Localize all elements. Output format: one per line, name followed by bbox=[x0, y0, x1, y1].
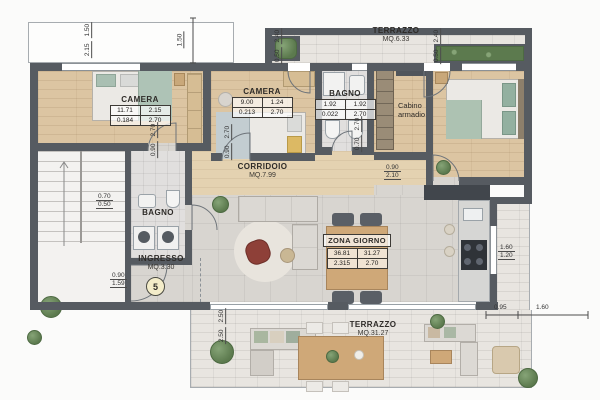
cell: 11.71 bbox=[110, 106, 140, 116]
dim-value: 2.70 bbox=[354, 116, 362, 133]
cell: 0.184 bbox=[110, 116, 140, 126]
room-name: CAMERA bbox=[243, 87, 281, 96]
outdoor-armchair bbox=[492, 346, 520, 374]
hedge bbox=[436, 46, 524, 61]
dimension-label: 0.901.59 bbox=[110, 272, 127, 288]
room-tag-terrazzo-top: TERRAZZO MQ.6.33 bbox=[357, 26, 435, 43]
wall bbox=[490, 204, 497, 226]
wall bbox=[328, 302, 348, 310]
plant bbox=[436, 160, 451, 175]
cell: 2.70 bbox=[357, 259, 387, 269]
room-name: CAMERA bbox=[121, 95, 159, 104]
plant bbox=[27, 330, 42, 345]
cell: 2.70 bbox=[262, 108, 292, 118]
cell: 9.00 bbox=[232, 98, 262, 108]
room-name-line: Cabino bbox=[398, 101, 440, 110]
window bbox=[352, 63, 368, 71]
outdoor-sofa bbox=[250, 350, 274, 376]
window bbox=[490, 226, 497, 274]
wall bbox=[315, 147, 332, 155]
toilet bbox=[166, 190, 180, 208]
wall bbox=[38, 63, 62, 71]
room-tag-corridoio: CORRIDOIO MQ.7.99 bbox=[225, 162, 300, 179]
wall bbox=[490, 197, 532, 204]
cell: 36.81 bbox=[327, 249, 357, 259]
pillow bbox=[502, 111, 516, 135]
washer-drum bbox=[138, 231, 150, 243]
cell: 2.15 bbox=[140, 106, 170, 116]
cell: 0.213 bbox=[232, 108, 262, 118]
wall bbox=[450, 63, 462, 71]
wall bbox=[211, 153, 222, 161]
dim-value: 1.60 bbox=[498, 244, 515, 252]
room-area: MQ.7.99 bbox=[249, 172, 276, 179]
dimension-label: 0.502.40 bbox=[433, 28, 441, 64]
room-data-table: 9.001.24 0.2132.70 bbox=[232, 97, 293, 118]
dim-value: 1.60 bbox=[534, 304, 551, 311]
dining-chair bbox=[360, 213, 382, 226]
room-name: ZONA GIORNO bbox=[323, 234, 391, 247]
dim-value: 0.95 bbox=[492, 304, 509, 311]
plant bbox=[518, 368, 538, 388]
pillow bbox=[270, 331, 284, 343]
wall bbox=[368, 63, 424, 71]
dryer-drum bbox=[162, 231, 174, 243]
dim-value: 0.90 bbox=[110, 272, 127, 280]
dim-value: 2.40 bbox=[274, 28, 282, 45]
room-area: MQ.3.30 bbox=[148, 264, 175, 271]
dimension-label: 2.502.50 bbox=[218, 308, 226, 344]
dimension-label: 0.95 bbox=[492, 304, 509, 311]
room-name: BAGNO bbox=[329, 89, 361, 98]
window bbox=[62, 63, 140, 71]
kitchen-sink bbox=[463, 208, 483, 221]
wall bbox=[38, 143, 148, 151]
pillow bbox=[502, 83, 516, 107]
dimension-label: 0.902.70 bbox=[150, 122, 158, 158]
dimension-label: 0.702.70 bbox=[354, 116, 362, 152]
sliding-glass-door bbox=[210, 304, 328, 310]
dining-chair bbox=[360, 291, 382, 304]
room-tag-camera-1: CAMERA 11.712.15 0.1842.70 bbox=[96, 95, 184, 126]
outdoor-chair bbox=[306, 322, 323, 334]
sliding-glass-door bbox=[348, 304, 476, 310]
plant bbox=[212, 196, 229, 213]
door-opening bbox=[288, 63, 310, 71]
nightstand bbox=[174, 73, 185, 86]
toilet bbox=[325, 120, 340, 139]
plant bbox=[326, 350, 339, 363]
wall bbox=[30, 63, 38, 310]
dim-value: 2.50 bbox=[218, 308, 226, 325]
floor-plan: CAMERA 11.712.15 0.1842.70 CAMERA 9.001.… bbox=[0, 0, 600, 400]
dimension-label: 1.601.20 bbox=[498, 244, 515, 260]
burner bbox=[464, 244, 471, 251]
window bbox=[462, 63, 516, 71]
dim-value: 0.70 bbox=[354, 136, 362, 153]
room-tag-bagno-1: BAGNO 1.921.92 0.0222.70 bbox=[305, 89, 385, 120]
dim-value: 0.70 bbox=[96, 193, 113, 201]
dim-value: 0.90 bbox=[150, 142, 158, 159]
plant bbox=[430, 314, 445, 329]
outdoor-chair bbox=[306, 381, 323, 392]
room-tag-ingresso: INGRESSO MQ.3.30 bbox=[122, 254, 200, 271]
outdoor-table bbox=[298, 336, 384, 380]
room-name: INGRESSO bbox=[138, 254, 183, 263]
room-tag-bagno-2: BAGNO bbox=[134, 208, 182, 217]
blanket bbox=[446, 100, 482, 139]
room-name-line: armadio bbox=[398, 110, 440, 119]
dimension-label: 0.502.40 bbox=[274, 28, 282, 64]
burner bbox=[464, 258, 471, 265]
dining-chair bbox=[332, 213, 354, 226]
unit-number: 5 bbox=[153, 282, 158, 292]
wall bbox=[374, 152, 426, 160]
cell: 2.315 bbox=[327, 259, 357, 269]
pillow bbox=[254, 331, 268, 343]
room-data-table: 1.921.92 0.0222.70 bbox=[315, 99, 376, 120]
dimension-label: 0.902.70 bbox=[224, 124, 232, 160]
stool bbox=[444, 246, 455, 257]
kitchen-cabinets bbox=[424, 185, 490, 200]
wall bbox=[250, 153, 315, 161]
dim-value: 1.50 bbox=[176, 32, 184, 49]
room-name: TERRAZZO bbox=[350, 320, 397, 329]
burner bbox=[476, 258, 483, 265]
room-tag-camera-2: CAMERA 9.001.24 0.2132.70 bbox=[218, 87, 306, 118]
corridoio-passage-floor bbox=[374, 160, 433, 185]
dim-value: 0.50 bbox=[274, 48, 282, 65]
outdoor-coffee-table bbox=[430, 350, 452, 364]
dim-value: 0.50 bbox=[433, 48, 441, 65]
dim-value: 2.40 bbox=[433, 28, 441, 45]
balcony-outline bbox=[28, 22, 234, 63]
room-name: CORRIDOIO bbox=[238, 162, 288, 171]
dim-value: 0.90 bbox=[384, 164, 401, 172]
closet bbox=[283, 71, 315, 87]
wall bbox=[185, 151, 192, 205]
cell: 1.24 bbox=[262, 98, 292, 108]
dim-value: 1.20 bbox=[498, 252, 515, 260]
dim-value: 0.90 bbox=[224, 144, 232, 161]
room-area: MQ.6.33 bbox=[383, 36, 410, 43]
coffee-table bbox=[280, 248, 295, 263]
wall bbox=[272, 63, 288, 71]
sofa bbox=[238, 196, 318, 222]
wall bbox=[310, 63, 352, 71]
pillow bbox=[96, 74, 116, 87]
dim-value: 2.70 bbox=[150, 122, 158, 139]
washbasin bbox=[138, 194, 156, 208]
outdoor-chair bbox=[332, 381, 349, 392]
wall bbox=[203, 63, 211, 151]
blanket bbox=[216, 112, 250, 159]
pillow bbox=[120, 74, 140, 87]
pillow bbox=[287, 136, 302, 153]
room-data-table: 36.8131.27 2.3152.70 bbox=[327, 248, 388, 269]
dimension-label: 0.700.50 bbox=[96, 193, 113, 209]
room-tag-terrazzo-bottom: TERRAZZO MQ.31.27 bbox=[335, 320, 411, 337]
unit-number-badge: 5 bbox=[146, 277, 165, 296]
room-name: TERRAZZO bbox=[373, 26, 420, 35]
room-data-table: 11.712.15 0.1842.70 bbox=[110, 105, 171, 126]
cell: 1.92 bbox=[315, 100, 345, 110]
dim-value: 1.59 bbox=[110, 280, 127, 288]
wall bbox=[524, 63, 532, 204]
room-tag-zona-giorno: ZONA GIORNO 36.8131.27 2.3152.70 bbox=[314, 234, 400, 269]
dimension-label: 1.60 bbox=[534, 304, 551, 311]
dimension-label: 0.902.10 bbox=[384, 164, 401, 180]
pillow bbox=[444, 327, 456, 338]
dimension-label: 2.151.50 bbox=[84, 22, 92, 58]
dim-value: 2.70 bbox=[224, 124, 232, 141]
dim-value: 2.15 bbox=[84, 42, 92, 59]
dim-value: 0.50 bbox=[96, 201, 113, 209]
wall bbox=[459, 177, 524, 185]
cell: 1.92 bbox=[345, 100, 375, 110]
wardrobe bbox=[187, 73, 202, 145]
room-area: MQ.31.27 bbox=[358, 330, 389, 337]
plate bbox=[354, 350, 364, 360]
cell: 31.27 bbox=[357, 249, 387, 259]
dim-value: 1.50 bbox=[84, 22, 92, 39]
wall bbox=[426, 152, 433, 185]
room-tag-cabina: Cabino armadio bbox=[398, 101, 440, 119]
room-name: BAGNO bbox=[142, 208, 174, 217]
nightstand bbox=[435, 72, 448, 84]
burner bbox=[476, 244, 483, 251]
dim-value: 2.10 bbox=[384, 172, 401, 180]
wall bbox=[30, 302, 210, 310]
door-opening bbox=[424, 63, 450, 71]
cell: 0.022 bbox=[315, 110, 345, 120]
stair-stringer bbox=[80, 151, 82, 243]
projection-line bbox=[200, 258, 201, 302]
dimension-label: 1.50 bbox=[176, 32, 184, 49]
dim-value: 2.50 bbox=[218, 328, 226, 345]
outdoor-lounge bbox=[460, 342, 478, 376]
stool bbox=[444, 224, 455, 235]
